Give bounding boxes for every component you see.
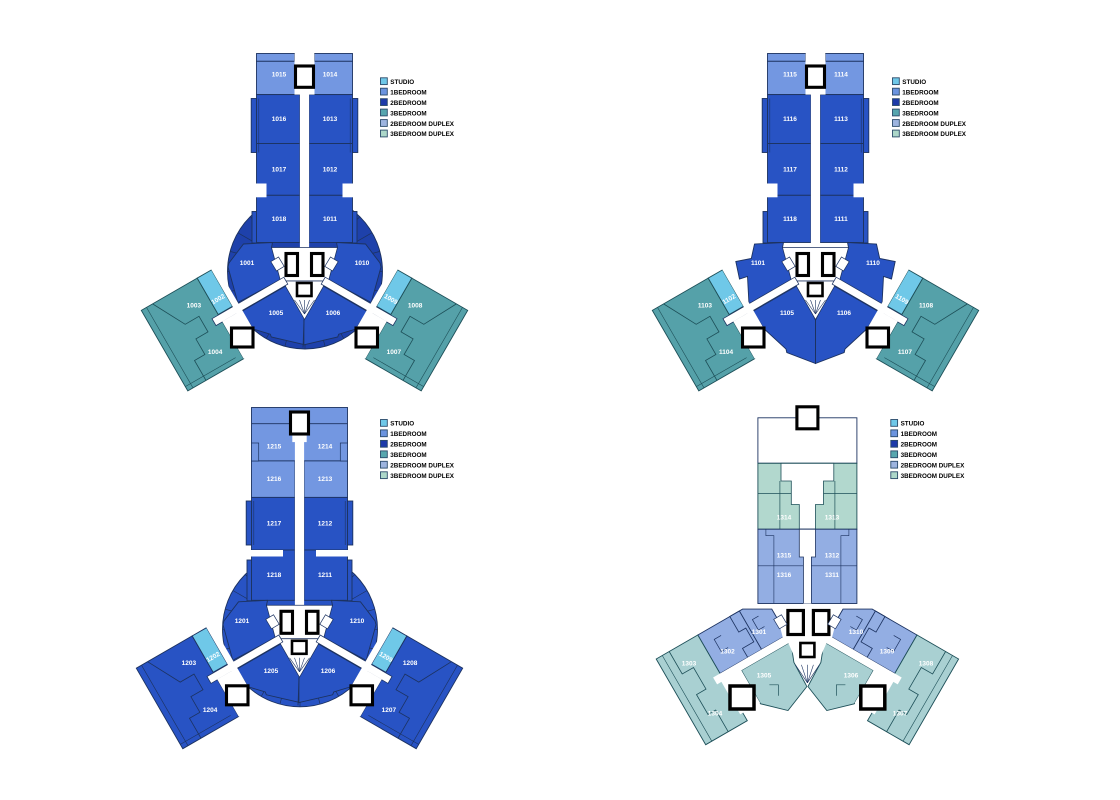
svg-text:1113: 1113 xyxy=(834,116,848,123)
svg-text:1306: 1306 xyxy=(844,673,859,680)
svg-text:1203: 1203 xyxy=(182,660,197,667)
svg-text:1313: 1313 xyxy=(825,515,840,522)
svg-text:3BEDROOM DUPLEX: 3BEDROOM DUPLEX xyxy=(390,473,454,480)
svg-text:1007: 1007 xyxy=(387,349,402,356)
svg-text:1112: 1112 xyxy=(834,166,848,173)
svg-text:2BEDROOM DUPLEX: 2BEDROOM DUPLEX xyxy=(390,463,454,470)
svg-text:1107: 1107 xyxy=(898,349,912,356)
svg-text:1117: 1117 xyxy=(783,166,797,173)
svg-text:1314: 1314 xyxy=(777,515,792,522)
svg-text:1207: 1207 xyxy=(382,707,397,714)
svg-text:2BEDROOM: 2BEDROOM xyxy=(390,100,426,107)
svg-text:1309: 1309 xyxy=(880,649,895,656)
svg-text:1212: 1212 xyxy=(318,521,333,528)
svg-text:2BEDROOM DUPLEX: 2BEDROOM DUPLEX xyxy=(902,121,966,128)
svg-text:1307: 1307 xyxy=(893,711,908,718)
svg-text:1103: 1103 xyxy=(698,302,712,309)
svg-text:2BEDROOM DUPLEX: 2BEDROOM DUPLEX xyxy=(901,463,965,470)
svg-text:1105: 1105 xyxy=(780,310,794,317)
svg-text:1303: 1303 xyxy=(682,661,697,668)
svg-text:3BEDROOM DUPLEX: 3BEDROOM DUPLEX xyxy=(390,131,454,138)
svg-text:1018: 1018 xyxy=(272,216,287,223)
svg-text:1304: 1304 xyxy=(708,711,723,718)
svg-text:2BEDROOM DUPLEX: 2BEDROOM DUPLEX xyxy=(390,121,454,128)
svg-text:1013: 1013 xyxy=(323,116,338,123)
svg-text:1310: 1310 xyxy=(849,629,864,636)
svg-text:3BEDROOM: 3BEDROOM xyxy=(390,452,426,459)
svg-text:3BEDROOM DUPLEX: 3BEDROOM DUPLEX xyxy=(901,473,965,480)
svg-text:1213: 1213 xyxy=(318,476,333,483)
svg-text:1208: 1208 xyxy=(403,660,418,667)
svg-text:1114: 1114 xyxy=(834,71,848,78)
svg-text:1111: 1111 xyxy=(834,216,848,223)
svg-text:1BEDROOM: 1BEDROOM xyxy=(901,431,937,438)
svg-text:1012: 1012 xyxy=(323,166,338,173)
svg-text:1210: 1210 xyxy=(350,618,365,625)
svg-text:1312: 1312 xyxy=(825,553,840,560)
svg-text:STUDIO: STUDIO xyxy=(901,421,925,428)
svg-text:1115: 1115 xyxy=(783,71,797,78)
svg-text:1201: 1201 xyxy=(235,618,250,625)
svg-text:1110: 1110 xyxy=(866,260,880,267)
svg-text:1104: 1104 xyxy=(719,349,733,356)
svg-text:1014: 1014 xyxy=(323,71,338,78)
svg-text:1106: 1106 xyxy=(837,310,851,317)
svg-text:1BEDROOM: 1BEDROOM xyxy=(390,90,426,97)
svg-text:3BEDROOM: 3BEDROOM xyxy=(902,110,938,117)
svg-text:2BEDROOM: 2BEDROOM xyxy=(902,100,938,107)
svg-text:1216: 1216 xyxy=(267,476,282,483)
svg-text:1118: 1118 xyxy=(783,216,797,223)
svg-text:1001: 1001 xyxy=(240,260,255,267)
svg-text:1011: 1011 xyxy=(323,216,337,223)
svg-text:3BEDROOM: 3BEDROOM xyxy=(390,110,426,117)
svg-text:1108: 1108 xyxy=(919,302,933,309)
svg-text:STUDIO: STUDIO xyxy=(902,79,926,86)
svg-text:1211: 1211 xyxy=(318,572,332,579)
svg-text:1116: 1116 xyxy=(783,116,797,123)
svg-text:2BEDROOM: 2BEDROOM xyxy=(901,442,937,449)
svg-text:1204: 1204 xyxy=(203,707,218,714)
svg-text:1311: 1311 xyxy=(825,572,839,579)
svg-text:STUDIO: STUDIO xyxy=(390,79,414,86)
svg-text:1008: 1008 xyxy=(408,302,423,309)
svg-text:1206: 1206 xyxy=(321,668,336,675)
svg-text:1101: 1101 xyxy=(751,260,765,267)
svg-text:1003: 1003 xyxy=(187,302,202,309)
svg-text:1214: 1214 xyxy=(318,443,333,450)
svg-text:1017: 1017 xyxy=(272,166,287,173)
svg-text:1301: 1301 xyxy=(752,629,767,636)
svg-text:2BEDROOM: 2BEDROOM xyxy=(390,442,426,449)
svg-text:1316: 1316 xyxy=(777,572,792,579)
svg-text:1205: 1205 xyxy=(264,668,279,675)
svg-text:1215: 1215 xyxy=(267,443,282,450)
svg-text:1315: 1315 xyxy=(777,553,792,560)
svg-text:3BEDROOM: 3BEDROOM xyxy=(901,452,937,459)
svg-text:1218: 1218 xyxy=(267,572,282,579)
svg-text:1015: 1015 xyxy=(272,71,287,78)
svg-text:1005: 1005 xyxy=(269,310,284,317)
svg-text:1217: 1217 xyxy=(267,521,282,528)
svg-text:3BEDROOM DUPLEX: 3BEDROOM DUPLEX xyxy=(902,131,966,138)
svg-text:STUDIO: STUDIO xyxy=(390,421,414,428)
svg-text:1BEDROOM: 1BEDROOM xyxy=(902,90,938,97)
svg-text:1BEDROOM: 1BEDROOM xyxy=(390,431,426,438)
svg-text:1010: 1010 xyxy=(355,260,370,267)
svg-text:1305: 1305 xyxy=(757,673,772,680)
svg-text:1016: 1016 xyxy=(272,116,287,123)
svg-text:1006: 1006 xyxy=(326,310,341,317)
svg-text:1308: 1308 xyxy=(919,661,934,668)
svg-text:1302: 1302 xyxy=(720,649,735,656)
svg-text:1004: 1004 xyxy=(208,349,223,356)
